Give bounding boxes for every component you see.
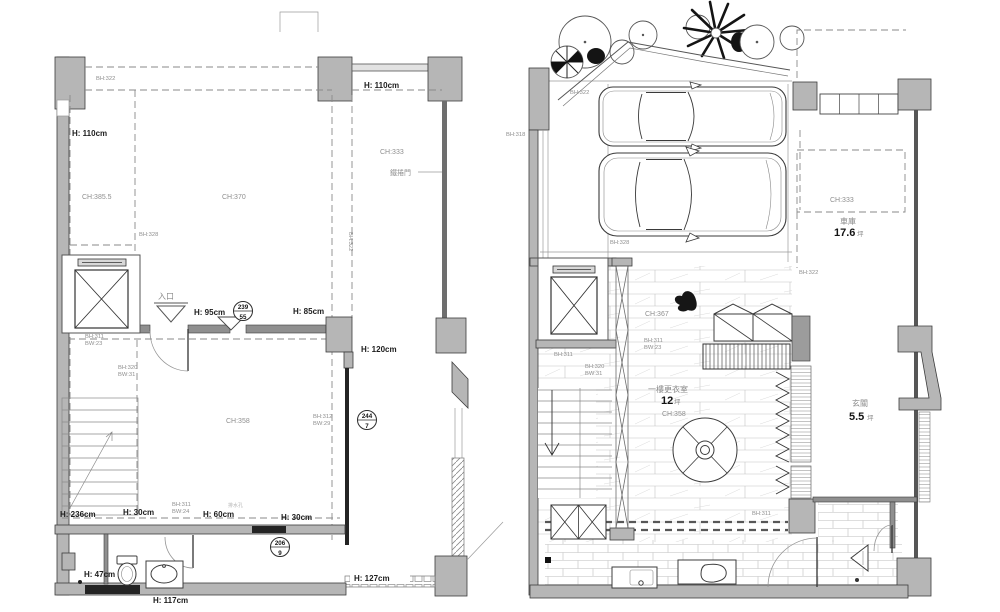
room-name-label: 玄關 [852, 398, 868, 408]
area-unit-label: 坪 [867, 414, 874, 422]
beam-label: BH:322 [347, 232, 353, 251]
round-fixture-icon [673, 418, 737, 482]
svg-text:55: 55 [240, 314, 247, 321]
wardrobe-strip [791, 466, 811, 498]
height-label: H: 127cm [354, 574, 390, 583]
wardrobe-strip [791, 366, 811, 462]
ceiling-height-label: CH:385.5 [82, 194, 112, 201]
beam-label: BW:31 [118, 372, 135, 378]
svg-text:239: 239 [238, 304, 249, 311]
height-label: H: 95cm [194, 308, 225, 317]
beam-label: BH:318 [506, 132, 525, 138]
beam-label: BH:312 [313, 414, 332, 420]
right-floor-plan: BH:318 BH:322 BH:328 BH:322 CH:333 車庫 17… [505, 0, 1000, 612]
height-label: H: 30cm [281, 513, 312, 522]
ceiling-height-label: CH:367 [645, 311, 669, 318]
floor-grate [551, 505, 606, 539]
beam-label: BH:311 [172, 502, 191, 508]
svg-text:7: 7 [365, 423, 369, 430]
area-unit-label: 坪 [674, 398, 681, 406]
left-plan-interior-walls [55, 317, 353, 584]
shrub-icon [587, 48, 605, 64]
height-label: H: 60cm [203, 510, 234, 519]
beam-label: BH:322 [570, 90, 589, 96]
beam-label: BH:322 [96, 76, 115, 82]
beam-label: BH:328 [139, 232, 158, 238]
beam-label: BW:29 [313, 421, 330, 427]
trees [551, 2, 804, 78]
hatched-wall [452, 458, 464, 556]
svg-text:206: 206 [275, 540, 286, 547]
entry-canopy-wall [898, 326, 941, 410]
room-name-label: 一樓更衣室 [648, 384, 688, 394]
height-label: H: 110cm [72, 129, 107, 138]
door-schedule-marker: 239 55 [234, 302, 253, 322]
entrance-arrow-icon [154, 303, 188, 322]
sink-icon [146, 561, 183, 588]
height-label: H: 110cm [364, 81, 399, 90]
stairs-icon [62, 398, 138, 515]
room-area-label: 5.5 [849, 411, 864, 423]
beam-label: BW:31 [585, 371, 602, 377]
cabinet-column [792, 316, 810, 361]
clothes-rail [703, 344, 790, 369]
beam-label: BH:320 [585, 364, 604, 370]
floor-drain-icon [78, 580, 82, 584]
rolling-door-label: 鐵捲門 [390, 168, 411, 177]
height-label: H: 47cm [84, 570, 115, 579]
ceiling-height-label: CH:333 [830, 197, 854, 204]
floor-plan-canvas: BH:322 H: 110cm H: 110cm CH:385.5 CH:370… [0, 0, 1000, 612]
height-label: H: 236cm [60, 510, 96, 519]
beam-label: BH:311 [85, 334, 104, 340]
height-label: H: 30cm [123, 508, 154, 517]
top-window [352, 64, 428, 71]
beam-label: BH:328 [610, 240, 629, 246]
left-floor-plan: BH:322 H: 110cm H: 110cm CH:385.5 CH:370… [0, 0, 505, 612]
svg-text:9: 9 [278, 550, 282, 557]
door-schedule-marker: 244 7 [358, 411, 377, 431]
beam-label: BH:322 [799, 270, 818, 276]
dark-wall-segment [345, 368, 349, 545]
height-label: H: 85cm [293, 307, 324, 316]
door-schedule-marker: 206 9 [271, 538, 290, 558]
ceiling-height-label: CH:358 [662, 411, 686, 418]
car-icon [599, 82, 786, 151]
wheel-tree-icon [551, 46, 583, 78]
toilet-icon [117, 556, 137, 585]
brick-floor [818, 502, 898, 542]
floor-drain-icon [855, 578, 859, 582]
rolling-door-wall [442, 101, 447, 318]
area-unit-label: 坪 [857, 230, 864, 238]
sink-icon [678, 560, 736, 584]
ceiling-height-label: CH:370 [222, 194, 246, 201]
beam-label: BW:23 [85, 341, 102, 347]
ceiling-height-label: CH:358 [226, 418, 250, 425]
svg-text:244: 244 [362, 413, 373, 420]
car-icon [599, 147, 786, 242]
room-area-label: 12 [661, 395, 673, 407]
beam-label: BW:24 [172, 509, 190, 515]
ceiling-height-label: CH:333 [380, 149, 404, 156]
cabinet-icon [612, 567, 657, 588]
elevator-icon [538, 258, 608, 340]
beam-label: BH:311 [644, 338, 663, 344]
beam-label: BH:320 [118, 365, 137, 371]
height-label: H: 117cm [153, 596, 188, 605]
beam-label: BW:23 [644, 345, 661, 351]
room-area-label: 17.6 [834, 227, 855, 239]
entrance-label: 入口 [158, 292, 174, 301]
drain-note: 排水孔 [228, 502, 243, 509]
beam-label: BH:311 [554, 352, 573, 358]
bay-wall [452, 362, 468, 408]
room-name-label: 車庫 [840, 216, 856, 226]
elevator-icon [62, 255, 140, 333]
height-label: H: 120cm [361, 345, 397, 354]
beam-label: BH:311 [752, 511, 771, 517]
entry-door [150, 329, 188, 371]
